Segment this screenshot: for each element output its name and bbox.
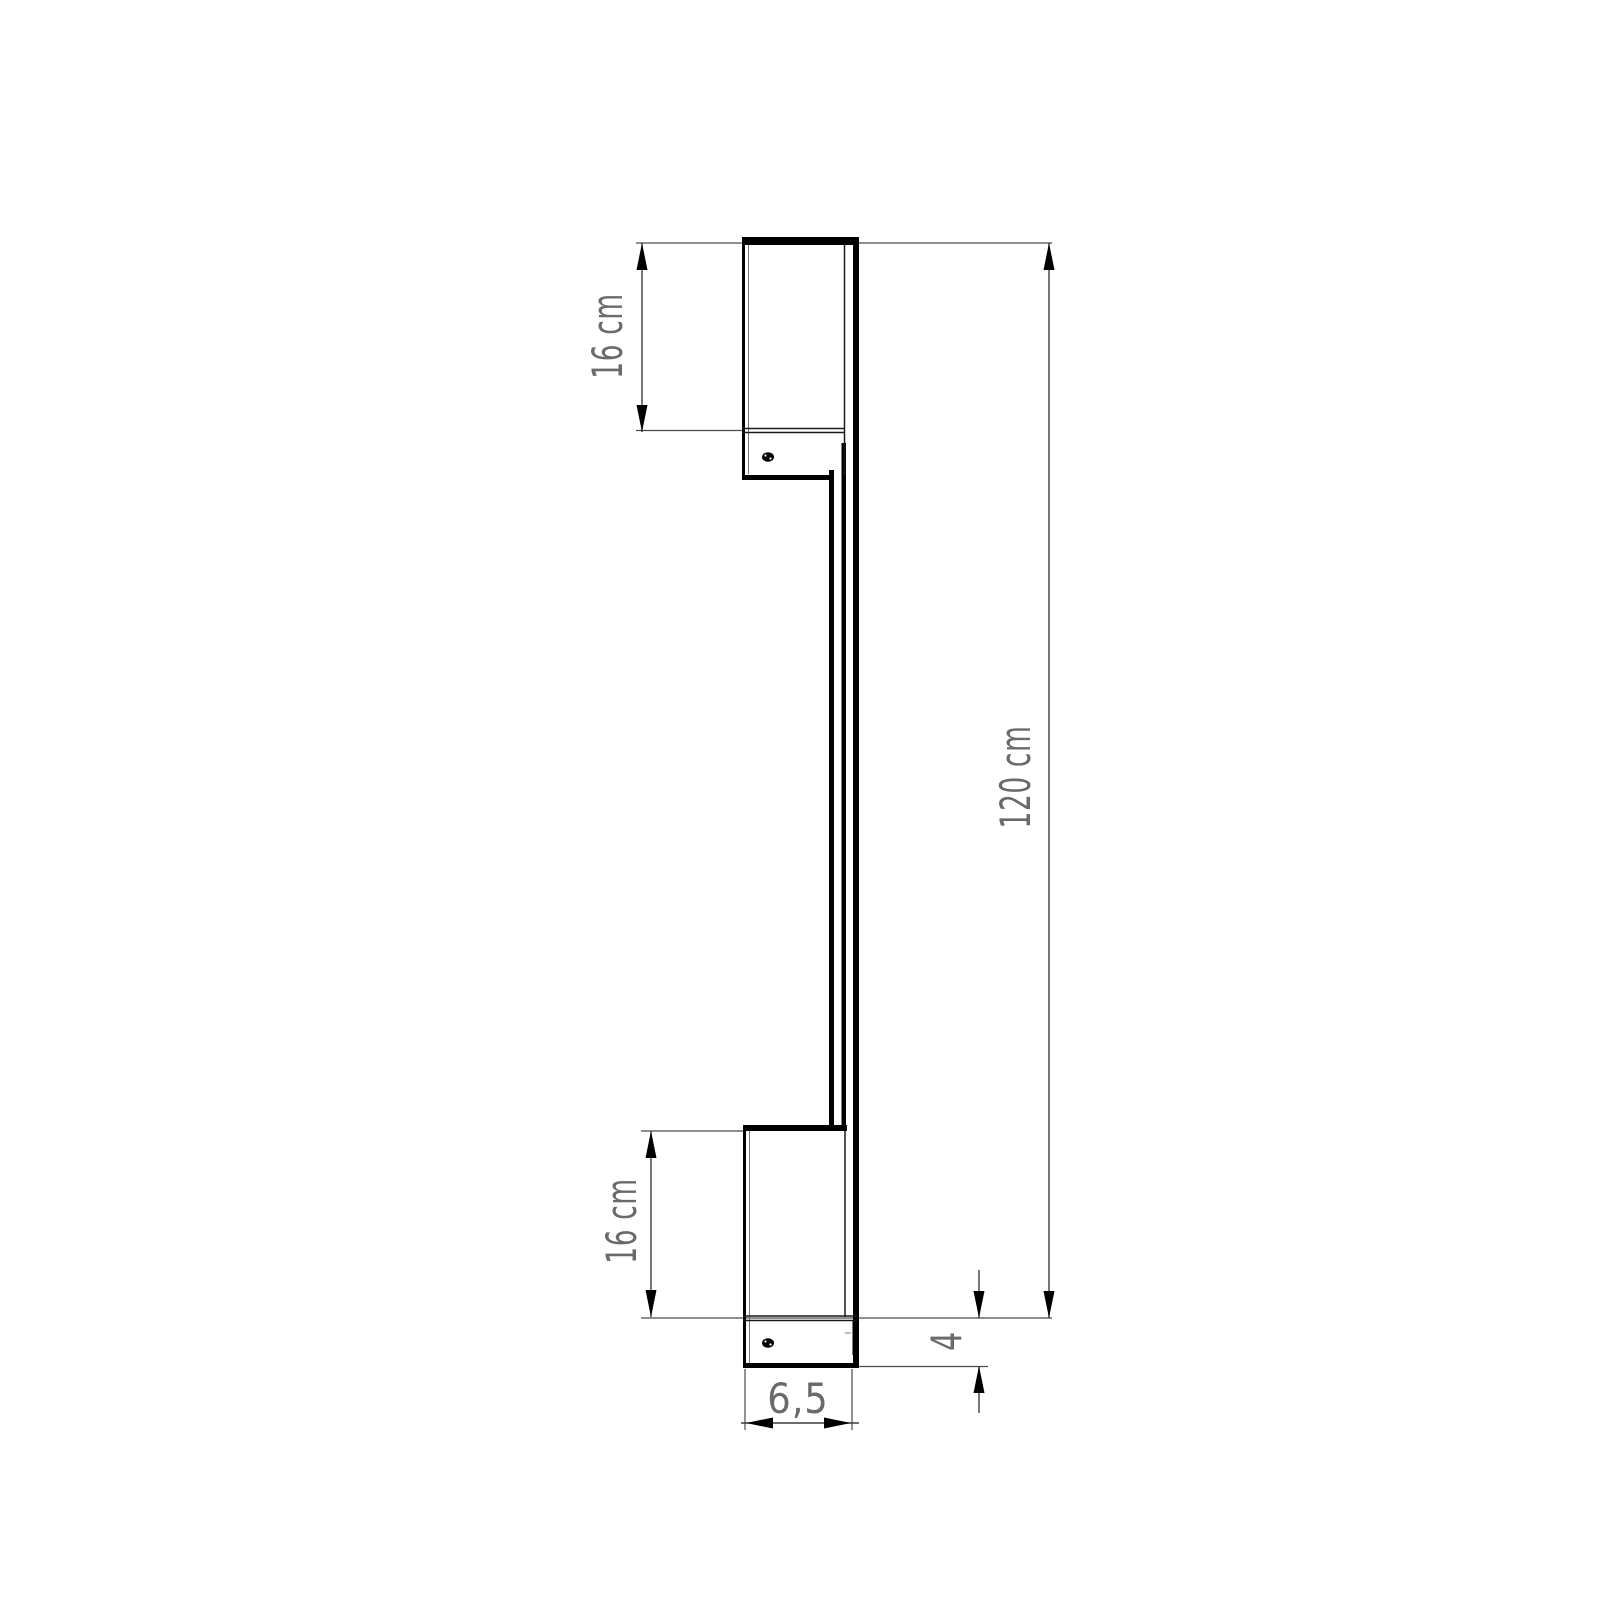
arrowhead-up-icon [1044, 243, 1055, 270]
dimension-120cm [1044, 243, 1055, 1318]
label-base-offset: 4 [922, 1331, 971, 1351]
arrowhead-down-icon [637, 405, 648, 432]
bracket-bottom-cap [743, 1363, 859, 1368]
top-mounting-bracket [742, 237, 858, 480]
lamp-right-edge [853, 237, 859, 1367]
screw-icon [762, 1338, 774, 1348]
label-bracket-top-height: 16 cm [584, 293, 633, 379]
bracket-top-cap [743, 1125, 847, 1131]
bracket-bottom-cap [742, 475, 831, 480]
arrowhead-down-icon [646, 1290, 657, 1317]
technical-drawing-canvas: 16 cm 16 cm 120 cm 4 6,5 [0, 0, 1600, 1600]
arrowhead-up-icon [974, 1366, 985, 1393]
lamp-dimension-drawing: 16 cm 16 cm 120 cm 4 6,5 [0, 0, 1600, 1600]
label-total-height: 120 cm [992, 725, 1041, 828]
arrowhead-up-icon [646, 1131, 657, 1158]
arrowhead-down-icon [1044, 1291, 1055, 1318]
dimension-16cm-bottom [641, 1131, 1052, 1318]
arrowhead-down-icon [974, 1291, 985, 1318]
bracket-left-edge [742, 237, 745, 480]
screw-icon [762, 452, 774, 462]
bar-middle-line [842, 443, 847, 1127]
bracket-left-edge [743, 1125, 746, 1367]
arrowhead-up-icon [637, 243, 648, 270]
bar-left-line [829, 470, 834, 1127]
label-bracket-bottom-height: 16 cm [598, 1178, 647, 1264]
label-base-width: 6,5 [767, 1375, 828, 1424]
bracket-top-cap [742, 237, 858, 245]
lamp-bar [829, 443, 846, 1127]
bottom-mounting-bracket [743, 1125, 859, 1368]
lamp-profile [742, 237, 859, 1368]
